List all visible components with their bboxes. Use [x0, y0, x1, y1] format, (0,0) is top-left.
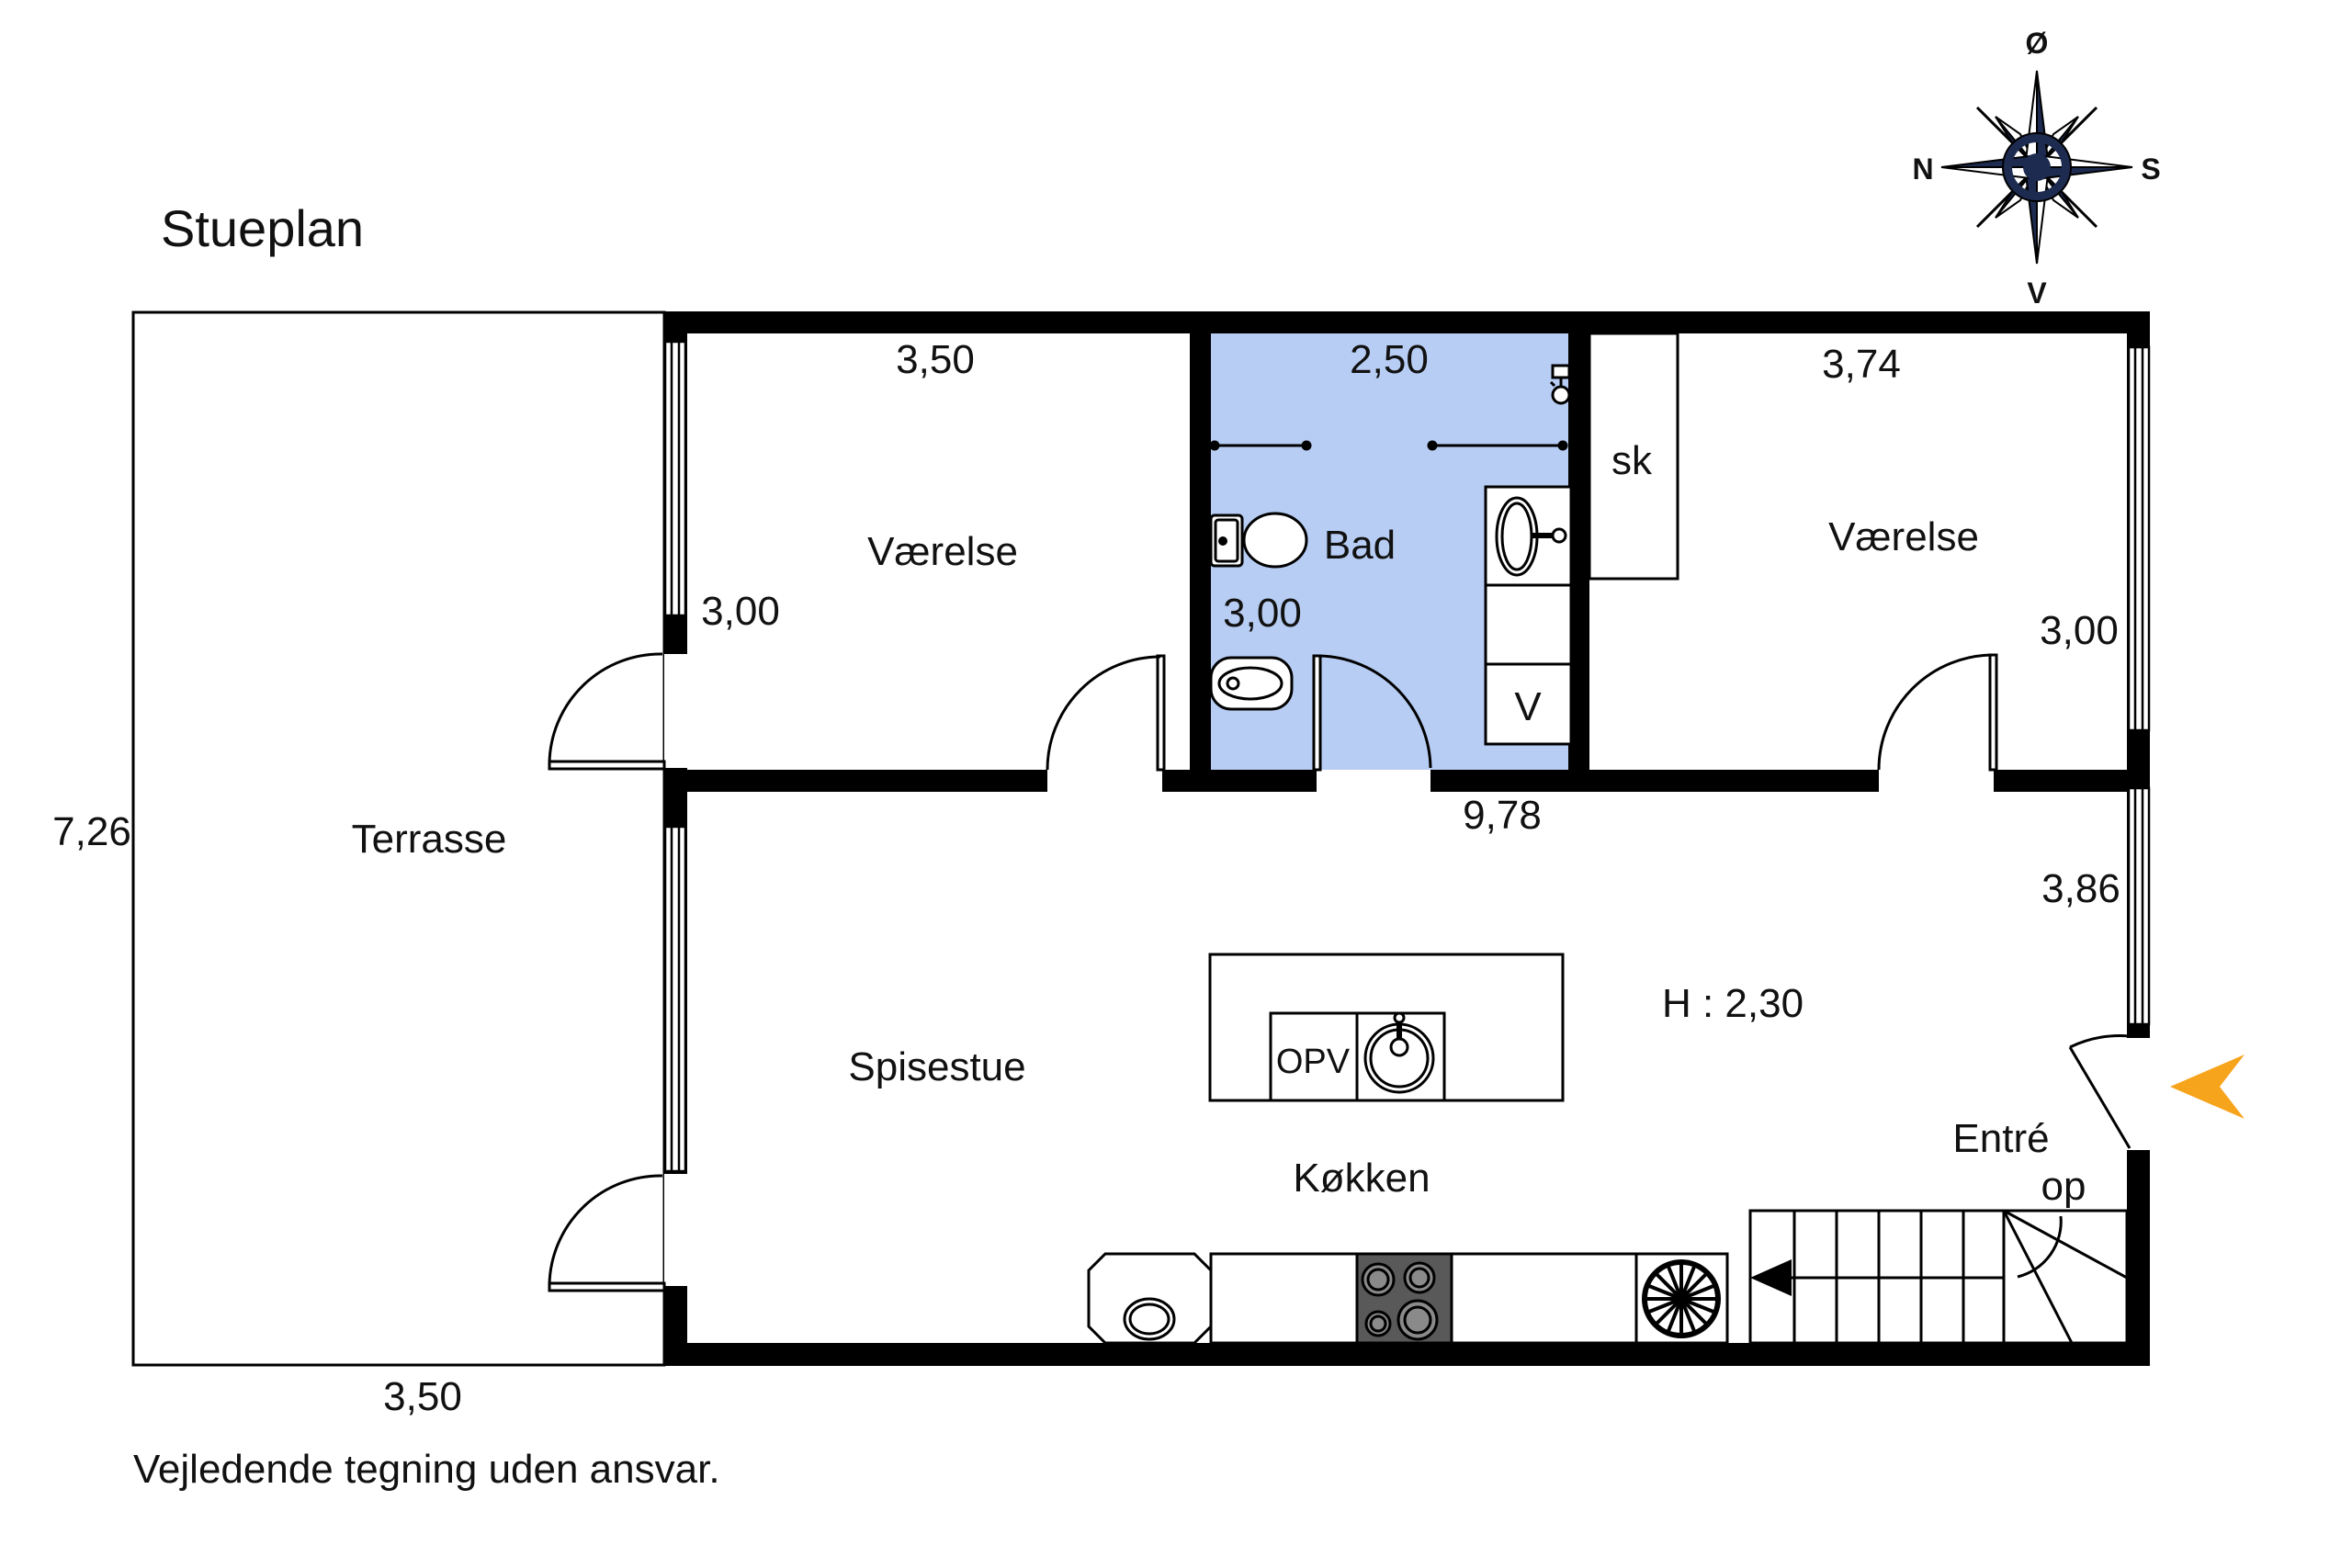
bedroom-right-width-dim: 3,74 — [1822, 342, 1901, 387]
kitchen-island — [1210, 954, 1563, 1100]
door-entry — [2070, 1036, 2150, 1150]
lower-width-dim: 9,78 — [1463, 793, 1542, 838]
window-right-upper — [2129, 347, 2149, 730]
wall-bath-left — [1190, 333, 1211, 792]
bedroom-right-height-dim: 3,00 — [2040, 608, 2119, 653]
kitchen-label: Køkken — [1293, 1156, 1430, 1201]
dining-label: Spisestue — [848, 1044, 1025, 1089]
terrace: Terrasse 7,26 3,50 — [52, 312, 664, 1419]
wall-middle-3 — [1430, 770, 1879, 792]
washer-label: V — [1514, 684, 1542, 729]
wall-middle-4 — [1994, 770, 2129, 792]
page-title: Stueplan — [161, 199, 364, 257]
entry-label: Entré — [1952, 1116, 2049, 1161]
kitchen-counter — [1089, 1254, 1727, 1343]
compass-west-label: V — [2027, 276, 2047, 310]
window-left-lower — [665, 827, 685, 1171]
bedroom-left-width-dim: 3,50 — [896, 337, 975, 382]
terrace-width-dim: 3,50 — [383, 1374, 462, 1419]
bath-label: Bad — [1324, 523, 1396, 568]
bath-height-dim: 3,00 — [1223, 591, 1302, 636]
entry-marker-icon — [2170, 1055, 2245, 1119]
wall-top — [664, 311, 2150, 333]
stove-icon — [1357, 1254, 1452, 1343]
bath-width-dim: 2,50 — [1350, 337, 1429, 382]
compass-south-label: S — [2141, 152, 2160, 186]
floor-plan: Stueplan Vejledende tegning uden ansvar.… — [0, 0, 2352, 1568]
bedroom-right-label: Værelse — [1828, 514, 1979, 559]
terrace-label: Terrasse — [352, 817, 507, 862]
terrace-height-dim: 7,26 — [52, 809, 131, 854]
door-bedroom-left — [1047, 656, 1164, 792]
closet-label: sk — [1611, 438, 1653, 483]
wall-bottom — [664, 1343, 2150, 1366]
compass-east-label: Ø — [2026, 27, 2049, 60]
compass-north-label: N — [1912, 152, 1933, 186]
wall-middle-1 — [687, 770, 1047, 792]
toilet-icon — [1211, 513, 1306, 567]
stairs-up-label: op — [2041, 1164, 2086, 1209]
window-right-lower — [2129, 788, 2149, 1024]
extractor-fan-icon — [1636, 1254, 1727, 1343]
closet: sk — [1589, 333, 1678, 579]
bedroom-left-label: Værelse — [867, 529, 1018, 574]
bath-cabinet — [1486, 585, 1571, 664]
dishwasher-label: OPV — [1276, 1043, 1351, 1081]
compass-icon — [1941, 71, 2132, 264]
right-height-dim: 3,86 — [2041, 866, 2120, 911]
wall-middle-2 — [1162, 770, 1317, 792]
door-bedroom-right — [1879, 655, 1996, 792]
footer-note: Vejledende tegning uden ansvar. — [133, 1447, 720, 1492]
staircase — [1750, 1211, 2127, 1343]
bedroom-left-height-dim: 3,00 — [701, 589, 780, 634]
bidet-icon — [1211, 658, 1292, 709]
ceiling-height-label: H : 2,30 — [1662, 981, 1804, 1026]
window-left-upper — [665, 342, 685, 615]
